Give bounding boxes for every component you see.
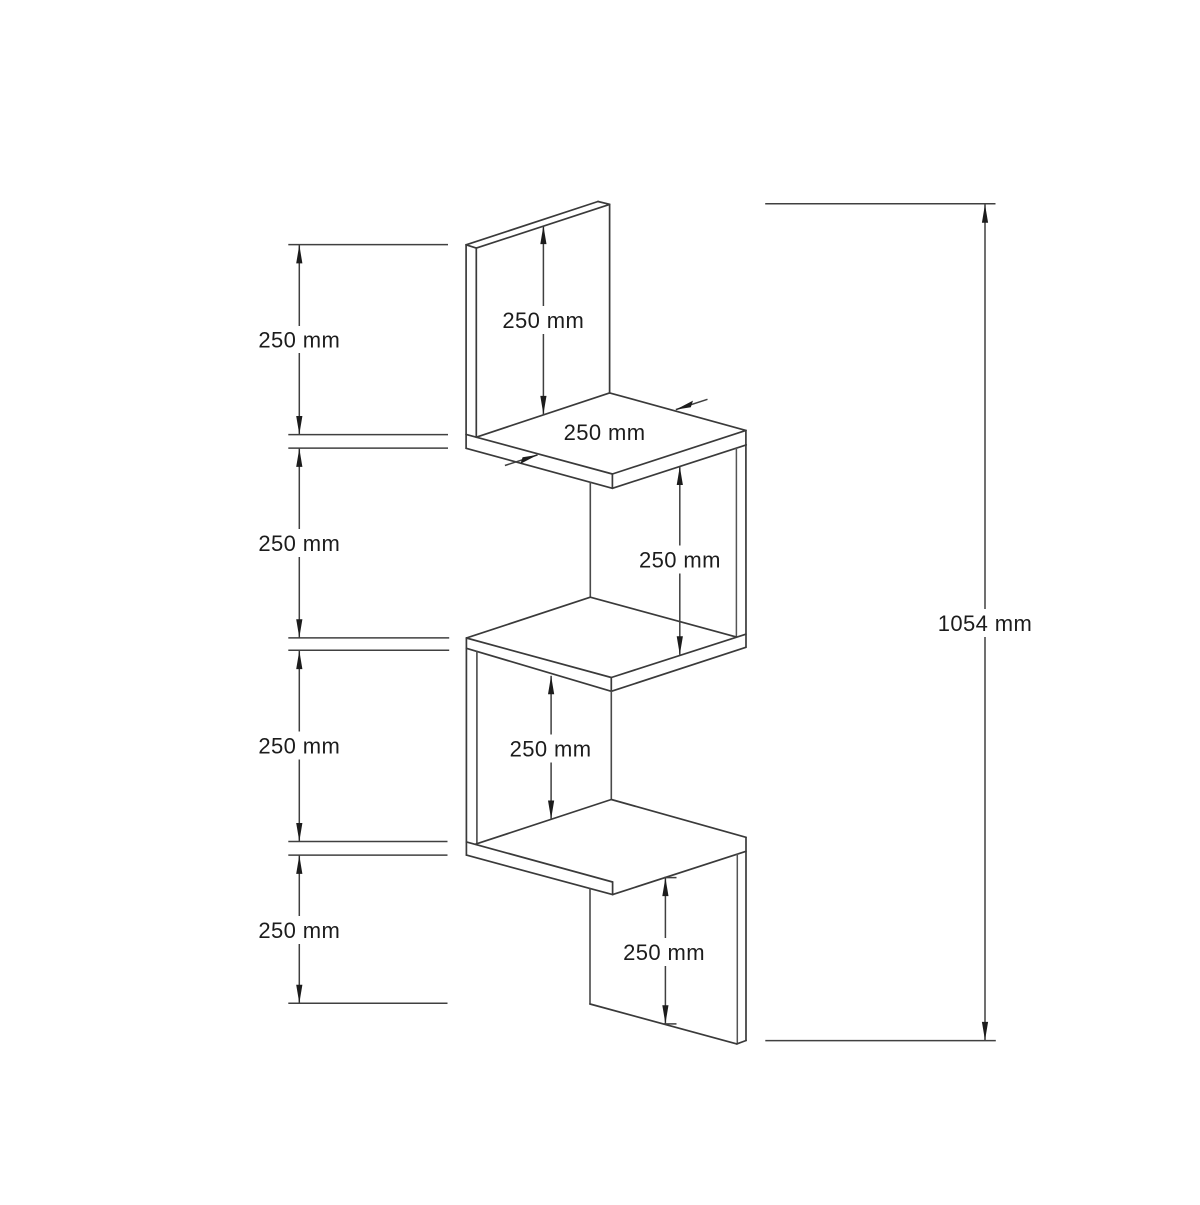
- svg-text:250 mm: 250 mm: [258, 733, 340, 758]
- svg-text:250 mm: 250 mm: [258, 327, 340, 352]
- svg-text:250 mm: 250 mm: [510, 736, 592, 761]
- svg-text:250 mm: 250 mm: [564, 420, 646, 445]
- svg-text:250 mm: 250 mm: [258, 531, 340, 556]
- svg-text:250 mm: 250 mm: [258, 918, 340, 943]
- svg-text:250 mm: 250 mm: [502, 308, 584, 333]
- svg-text:250 mm: 250 mm: [623, 940, 705, 965]
- svg-text:250 mm: 250 mm: [639, 547, 721, 572]
- svg-text:1054 mm: 1054 mm: [938, 611, 1033, 636]
